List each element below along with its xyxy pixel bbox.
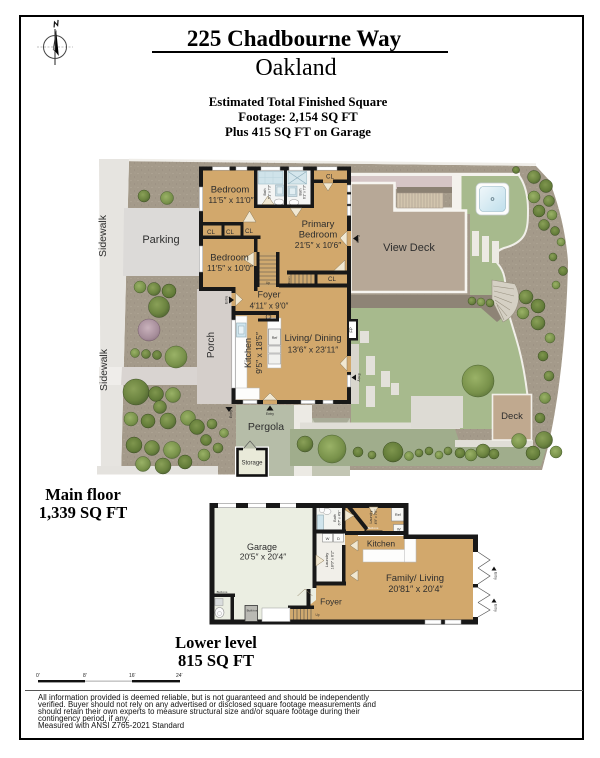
svg-text:Built-ins: Built-ins <box>217 590 228 594</box>
svg-text:Family/ Living: Family/ Living <box>386 573 444 584</box>
svg-text:Bedroom: Bedroom <box>211 185 250 196</box>
svg-text:Entry: Entry <box>225 296 229 304</box>
svg-text:Entry: Entry <box>356 235 360 243</box>
svg-text:Porch: Porch <box>206 332 217 358</box>
svg-text:Laundry: Laundry <box>369 510 373 523</box>
svg-text:Garage: Garage <box>247 542 277 552</box>
svg-text:Storage: Storage <box>241 461 263 467</box>
svg-text:Sidewalk: Sidewalk <box>97 214 109 257</box>
svg-text:D: D <box>337 536 340 541</box>
svg-text:Entry: Entry <box>266 412 274 416</box>
svg-text:6′1″ x 7′3″: 6′1″ x 7′3″ <box>303 184 307 199</box>
svg-text:Built-ins: Built-ins <box>368 526 379 530</box>
svg-text:CL: CL <box>328 276 336 283</box>
svg-text:Sidewalk: Sidewalk <box>98 348 110 391</box>
svg-text:13′6″ x 23′11″: 13′6″ x 23′11″ <box>288 345 339 355</box>
svg-text:CL: CL <box>226 229 234 236</box>
svg-text:Kitchen: Kitchen <box>243 338 253 368</box>
svg-text:Ref: Ref <box>272 336 278 340</box>
svg-text:Bath: Bath <box>263 188 267 195</box>
svg-text:CL: CL <box>245 228 253 235</box>
svg-text:11′5″ x 11′0″: 11′5″ x 11′0″ <box>208 195 253 205</box>
svg-text:5′1″ x 7′3″: 5′1″ x 7′3″ <box>268 184 272 199</box>
svg-text:0′: 0′ <box>36 673 40 679</box>
svg-text:FP: FP <box>349 327 354 333</box>
svg-text:Primary: Primary <box>302 219 335 230</box>
svg-text:CL: CL <box>326 174 334 181</box>
svg-text:11′5″ x 10′0″: 11′5″ x 10′0″ <box>207 263 253 273</box>
svg-text:18′0″ x 6′2″: 18′0″ x 6′2″ <box>331 550 335 569</box>
svg-text:21′5″ x 10′6″: 21′5″ x 10′6″ <box>295 240 342 250</box>
svg-text:View Deck: View Deck <box>383 242 435 254</box>
svg-text:CL: CL <box>207 229 215 236</box>
svg-text:Deck: Deck <box>501 411 523 422</box>
svg-text:24′: 24′ <box>176 673 183 679</box>
svg-text:20′81″ x 20′4″: 20′81″ x 20′4″ <box>388 584 443 594</box>
svg-text:Down: Down <box>287 276 291 284</box>
svg-text:W: W <box>397 528 401 532</box>
svg-text:9′5″ x 18′5″: 9′5″ x 18′5″ <box>254 332 264 374</box>
svg-text:Entry: Entry <box>229 410 233 418</box>
svg-text:Entry: Entry <box>357 374 361 382</box>
svg-text:Built-ins: Built-ins <box>247 609 258 613</box>
svg-text:Bedroom: Bedroom <box>210 253 249 264</box>
svg-text:Up: Up <box>315 613 319 617</box>
svg-text:Pergola: Pergola <box>248 421 284 433</box>
svg-text:Foyer: Foyer <box>257 290 280 300</box>
svg-text:Entry: Entry <box>494 604 498 612</box>
svg-text:16′: 16′ <box>129 673 136 679</box>
svg-text:Up: Up <box>266 281 270 285</box>
svg-text:CL: CL <box>266 314 274 321</box>
svg-text:Entry: Entry <box>494 572 498 580</box>
svg-text:Kitchen: Kitchen <box>367 539 396 549</box>
svg-text:4′11″ x 9′0″: 4′11″ x 9′0″ <box>250 302 289 311</box>
svg-text:Foyer: Foyer <box>320 597 342 607</box>
svg-text:W: W <box>326 536 330 541</box>
svg-text:Laundry: Laundry <box>324 553 329 567</box>
svg-text:Ref: Ref <box>395 513 402 517</box>
svg-text:Bedroom: Bedroom <box>299 230 338 241</box>
svg-text:20′5″ x 20′4″: 20′5″ x 20′4″ <box>240 552 287 562</box>
svg-text:4′9″ x 7′6″: 4′9″ x 7′6″ <box>374 509 378 525</box>
svg-text:Living/ Dining: Living/ Dining <box>284 333 341 344</box>
svg-text:Bath: Bath <box>333 514 337 521</box>
svg-text:6′7″ x 4′9″: 6′7″ x 4′9″ <box>338 510 342 526</box>
svg-text:8′: 8′ <box>83 673 87 679</box>
svg-text:Parking: Parking <box>142 234 179 246</box>
